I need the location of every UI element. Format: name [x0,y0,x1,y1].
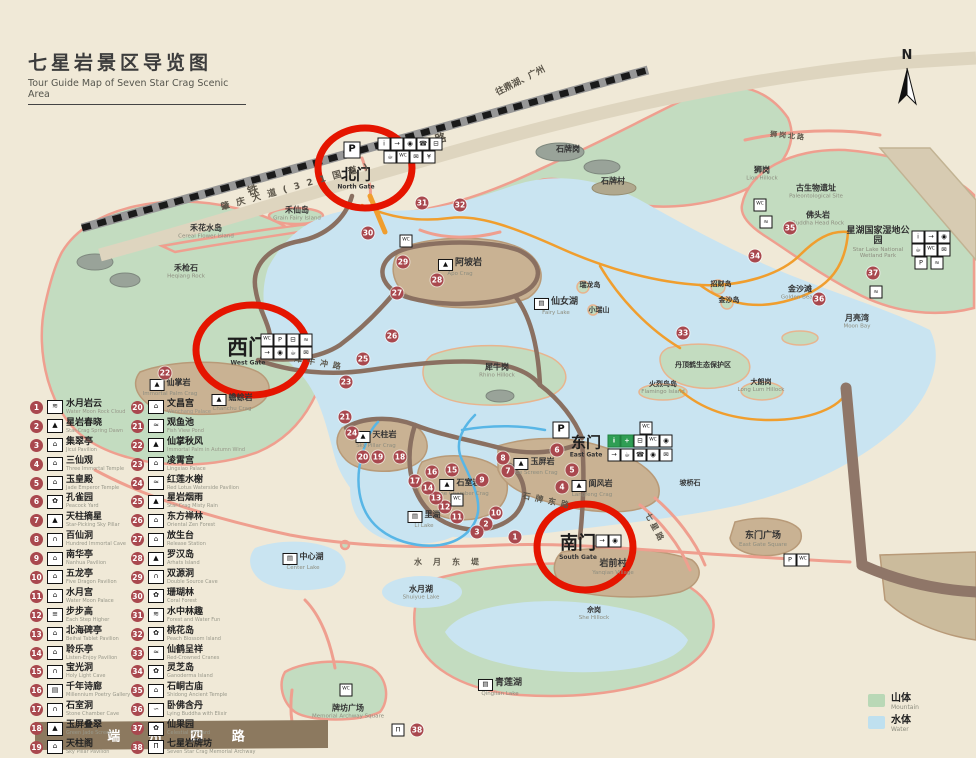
place-name-cn: 狮岗 [754,166,770,175]
mail-icon: ✉ [410,151,423,164]
legend-item-name-en: Jade Emperor Temple [66,486,119,491]
legend-item-name-en: Holy Light Cave [66,674,105,679]
mail-icon: ✉ [300,347,313,360]
boat-icon: ≈ [300,334,313,347]
legend-item-name-cn: 石室洞 [66,702,119,711]
legend-item-name-en: Star-Crag Misty Rain [167,504,218,509]
place-name-en: Shuiyue Lake [403,594,440,600]
place-name-en: Paleontological Site [789,193,843,199]
legend-item-name-cn: 卧佛含丹 [167,702,227,711]
bus-icon: ⊟ [287,334,300,347]
legend-item-name-en: Seven Star Crag Memorial Archway [167,750,255,755]
place-label: 禾仙岛 Grain Fairy Island [273,207,321,222]
sight-marker: 36 [813,293,826,306]
sight-marker: 17 [409,475,422,488]
restroom-icon: WC [640,422,653,435]
parking-icon: P [784,554,797,567]
legend-item: 35 ⌂ 石峒古庙 Shidong Ancient Temple [131,681,255,700]
restroom-icon: WC [400,235,413,248]
legend-item-name-cn: 五龙亭 [66,570,117,579]
legend-item-number: 4 [30,458,43,471]
restroom-icon: WC [261,334,274,347]
place-label: ▤青莲湖 Qinglian Lake [478,679,522,697]
place-label: 大朗岗 Long Lum Hillock [738,379,785,393]
legend-item-name-cn: 南华亭 [66,551,106,560]
legend-item-name-cn: 千年诗廊 [66,683,130,692]
legend-item-icon: ∩ [47,533,63,547]
legend-item-name-cn: 百仙洞 [66,532,126,541]
legend-item-name-cn: 天柱摘星 [66,513,120,522]
place-label: 禾花水岛 Cereal Flower Island [178,225,234,240]
legend-item-name-cn: 宝光洞 [66,664,105,673]
sight-marker: 25 [357,353,370,366]
legend-item-name-en: Stone Chamber Cave [66,712,119,717]
boat-icon: ≈ [760,216,773,229]
place-name-en: Jade Screen Crag [510,470,557,476]
camera-icon: ◉ [274,347,287,360]
restroom-icon: WC [647,435,660,448]
legend-item-number: 38 [131,741,144,754]
legend-item-name-cn: 仙果园 [167,721,210,730]
legend-item-icon: ⌂ [148,457,164,471]
legend-item-number: 10 [30,571,43,584]
sight-marker: 15 [446,464,459,477]
place-name-cn: 阿坡岩 [455,258,482,268]
legend-item-number: 9 [30,552,43,565]
legend-item-name-en: Water Moon Rock Cloud [66,410,125,415]
legend-item-name-cn: 星岩烟雨 [167,494,218,503]
place-name-cn: 仙掌岩 [167,378,191,387]
legend-item: 11 ⌂ 水月宫 Water Moon Palace [30,587,130,606]
legend-item: 24 ≈ 红莲水榭 Red Lotus Waterside Pavilion [131,474,255,493]
legend-item-name-en: Five Dragon Pavilion [66,580,117,585]
legend-item-number: 31 [131,609,144,622]
sight-marker: 3 [471,526,484,539]
sight-marker: 7 [502,465,515,478]
legend-item-name-en: Peacock Yard [66,504,99,509]
phone-icon: ☎ [634,449,647,462]
exit-icon: → [925,231,938,244]
legend-item-name-en: Release Station [167,542,206,547]
legend-item-number: 2 [30,420,43,433]
legend-item-number: 26 [131,514,144,527]
legend-item-name-cn: 天柱阁 [66,740,109,749]
place-label: ▲玉屏岩 Jade Screen Crag [510,458,557,476]
sight-marker: 26 [386,330,399,343]
place-name-en: Long Lum Hillock [738,387,785,393]
legend-item-icon: ✿ [148,627,164,641]
place-name-cn: 招财岛 [711,280,732,288]
legend-item: 36 ∽ 卧佛含丹 Lying Buddha with Elixir [131,700,255,719]
camera-icon: ◉ [609,535,622,548]
legend-item-number: 32 [131,628,144,641]
place-name-cn: 丹顶鹤生态保护区 [675,361,731,369]
legend-item-number: 6 [30,495,43,508]
legend-item-name-en: Ganoderma Island [167,674,213,679]
compass-needle [898,68,916,104]
sight-marker: 14 [422,482,435,495]
east-gate-label: 东门 East Gate [570,436,603,459]
legend-item-name-cn: 集翠亭 [66,438,97,447]
legend-item: 4 ⌂ 三仙观 Three Immortal Temple [30,455,130,474]
place-name-cn: 牌坊广场 [332,704,364,713]
place-label: 牌坊广场 Memorial Archway Square [312,705,384,720]
legend-item-icon: ≡ [47,608,63,622]
restroom-icon: WC [451,494,464,507]
place-name-en: Buddha Head Rock [792,220,844,226]
legend-item-number: 36 [131,703,144,716]
place-label: 狮岗 Lion Hillock [746,167,778,182]
legend-item-name-en: Double Source Cave [167,580,218,585]
place-name-cn: 里湖 [425,510,441,519]
legend-item-number: 27 [131,533,144,546]
legend-item-icon: ⌂ [47,457,63,471]
legend-item-name-en: Listen-Enjoy Pavilion [66,656,117,661]
legend-item-icon: ⌂ [47,740,63,754]
legend-item: 14 ⌂ 聆乐亭 Listen-Enjoy Pavilion [30,644,130,663]
legend-item-name-cn: 罗汉岛 [167,551,200,560]
legend-item-name-cn: 红莲水榭 [167,476,239,485]
place-label: 星湖国家湿地公园 Star Lake National Wetland Park [845,227,911,259]
legend-item-name-en: Wenchang Palace [167,410,211,415]
legend-item-name-cn: 仙掌秋风 [167,438,245,447]
legend-item-name-en: Forest and Water Fun [167,618,220,623]
sight-marker: 28 [431,274,444,287]
sight-marker: 8 [497,452,510,465]
sight-marker: 10 [490,507,503,520]
legend-item-icon: ≋ [47,400,63,414]
legend-item: 28 ▲ 罗汉岛 Arhats Island [131,549,255,568]
place-name-cn: 石牌岗 [556,145,580,154]
legend-item-icon: ▲ [148,495,164,509]
exit-icon: → [596,535,609,548]
place-name-en: Lion Hillock [746,175,778,181]
legend-item-number: 25 [131,495,144,508]
legend-item: 8 ∩ 百仙洞 Hundred Immortal Cave [30,530,130,549]
legend-item: 29 ∩ 双源洞 Double Source Cave [131,568,255,587]
legend-item-number: 29 [131,571,144,584]
place-name-cn: 古生物遗址 [796,184,836,193]
sight-marker: 18 [394,451,407,464]
water-swatch [868,716,885,729]
place-name-en: She Hillock [579,615,609,621]
legend-item-icon: ▲ [148,438,164,452]
exit-icon: → [391,138,404,151]
place-name-cn: 石牌村 [601,177,625,186]
legend-item-name-en: Celestial Orchard [167,731,210,736]
phone-icon: ☎ [417,138,430,151]
legend-item-icon: ✿ [148,589,164,603]
legend-item: 27 ⌂ 放生台 Release Station [131,530,255,549]
place-name-en: Fairy Lake [534,310,578,316]
map-title-cn: 七星岩景区导览图 [28,48,246,75]
legend-item: 31 ≋ 水中林趣 Forest and Water Fun [131,606,255,625]
bus-icon: ⊟ [634,435,647,448]
legend-item: 2 ▲ 星岩春晓 Star-Crag Spring Dawn [30,417,130,436]
boat-icon: ≈ [931,257,944,270]
south-gate-label: 南门 South Gate [559,535,597,561]
place-pictogram-icon: ▲ [439,479,454,491]
place-label: 石牌岗 [556,146,580,155]
place-name-cn: 禾枪石 [174,264,198,273]
legend-item-name-en: Star-Picking Sky Pillar [66,523,120,528]
legend-item: 15 ∩ 宝光洞 Holy Light Cave [30,662,130,681]
place-name-cn: 水月湖 [409,585,433,594]
place-label: ▤仙女湖 Fairy Lake [534,298,578,316]
legend-item-name-en: Peach Blossom Island [167,637,221,642]
place-name-cn: 佘岗 [587,606,601,614]
sight-marker: 33 [677,327,690,340]
place-label: 犀牛岗 Rhino Hillock [479,364,515,379]
archway-icon: Π [392,724,405,737]
place-pictogram-icon: ▤ [283,553,298,565]
place-label: 岩前村 Yanqian Village [592,560,634,576]
legend-item-name-cn: 水月宫 [66,589,114,598]
legend-item-icon: ▲ [148,552,164,566]
place-name-en: Memorial Archway Square [312,713,384,719]
place-name-cn: 大朗岗 [750,378,771,386]
place-name-cn: 玉屏岩 [531,457,555,466]
shop-icon: ¥ [423,151,436,164]
legend-item-icon: ⌂ [47,570,63,584]
legend-item-name-cn: 仙鹤呈祥 [167,646,219,655]
legend-item-name-cn: 北海碑亭 [66,627,119,636]
place-name-cn: 中心湖 [300,552,324,561]
map-title: 七星岩景区导览图 Tour Guide Map of Seven Star Cr… [28,48,246,105]
place-name-cn: 火烈鸟岛 [649,380,677,388]
place-name-cn: 青莲湖 [495,678,522,688]
legend-item-number: 14 [30,647,43,660]
place-name-cn: 岩前村 [599,559,626,569]
legend-item-number: 13 [30,628,43,641]
legend-item: 16 ▤ 千年诗廊 Millennium Poetry Gallery [30,681,130,700]
exit-icon: → [261,347,274,360]
place-label: 水月湖 Shuiyue Lake [403,586,440,601]
legend-item-name-cn: 文昌宫 [167,400,211,409]
legend-item-icon: ▤ [47,684,63,698]
legend-item-icon: ✿ [47,495,63,509]
legend-item-number: 37 [131,722,144,735]
legend-item-number: 18 [30,722,43,735]
legend-item-icon: ✿ [148,665,164,679]
legend-item-number: 24 [131,477,144,490]
place-label: 东门广场 East Gate Square [739,532,787,548]
drink-icon: ☕ [287,347,300,360]
legend-item-icon: Π [148,740,164,754]
sight-marker: 21 [339,411,352,424]
sight-marker: 32 [454,199,467,212]
parking-icon: P [553,422,570,439]
restroom-icon: WC [925,244,938,257]
legend-item: 37 ✿ 仙果园 Celestial Orchard [131,719,255,738]
parking-icon: P [344,142,361,159]
legend-item-name-cn: 放生台 [167,532,206,541]
place-name-en: Grain Fairy Island [273,215,321,221]
legend-item-number: 7 [30,514,43,527]
legend-item: 12 ≡ 步步高 Each Step Higher [30,606,130,625]
legend-item-icon: ⌂ [148,533,164,547]
sight-marker: 24 [346,427,359,440]
sight-marker: 6 [551,444,564,457]
place-name-cn: 金沙岛 [719,296,740,304]
place-label: 石牌村 [601,178,625,187]
road-label: 水月东堤 [414,557,490,568]
exit-icon: → [608,449,621,462]
place-label: 坡桥石 [680,480,701,488]
place-pictogram-icon: ▲ [514,458,529,470]
legend-item: 13 ⌂ 北海碑亭 Beihai Tablet Pavilion [30,625,130,644]
place-label: ▲阆风岩 Langfeng Crag [572,480,613,498]
legend-item-icon: ≋ [148,608,164,622]
legend-item: 34 ✿ 灵芝岛 Ganoderma Island [131,662,255,681]
place-label: ▲阿坡岩 Apo Crag [438,259,482,277]
legend-item-icon: ⌂ [47,476,63,490]
boat-icon: ≈ [870,286,883,299]
legend-item-name-cn: 双源洞 [167,570,218,579]
legend-item-name-cn: 三仙观 [66,457,124,466]
legend-item-icon: ▲ [47,419,63,433]
restroom-icon: WC [797,554,810,567]
place-label: 丹顶鹤生态保护区 [674,362,732,370]
legend-item-name-en: Coral Forest [167,599,197,604]
legend-item-name-en: Lying Buddha with Elixir [167,712,227,717]
legend-item-number: 5 [30,477,43,490]
sight-marker: 31 [416,197,429,210]
sight-marker: 1 [509,531,522,544]
place-name-cn: 天柱岩 [373,430,397,439]
legend-item: 18 ▲ 玉屏叠翠 Green Jade Screen [30,719,130,738]
legend-item-name-cn: 星岩春晓 [66,419,123,428]
legend-item-name-en: Shidong Ancient Temple [167,693,227,698]
sight-marker: 35 [784,222,797,235]
legend-item-name-en: Immortal Palm in Autumn Wind [167,448,245,453]
sight-marker: 23 [340,376,353,389]
place-label: 小瑞山 [589,307,610,315]
legend-item: 6 ✿ 孔雀园 Peacock Yard [30,492,130,511]
sight-marker: 19 [372,451,385,464]
legend-item-number: 17 [30,703,43,716]
legend-item-name-cn: 步步高 [66,608,109,617]
legend-item-number: 22 [131,439,144,452]
mountain-swatch [868,694,885,707]
legend-item-icon: ∩ [47,665,63,679]
place-pictogram-icon: ▤ [534,298,549,310]
legend-item-name-en: Green Jade Screen [66,731,112,736]
sight-marker: 37 [867,267,880,280]
parking-icon: P [274,334,287,347]
legend-item-icon: ⌂ [47,438,63,452]
compass: N [888,48,926,63]
legend-item-icon: ∩ [47,703,63,717]
sight-marker: 11 [451,511,464,524]
legend-item-number: 16 [30,684,43,697]
place-label: 佘岗 She Hillock [579,607,609,621]
legend-item-name-en: Fish View Pond [167,429,204,434]
place-label: 火烈鸟岛 Flamingo Island [641,381,684,395]
place-name-en: Langfeng Crag [572,492,613,498]
place-name-cn: 犀牛岗 [485,363,509,372]
sight-marker: 34 [749,250,762,263]
legend-item: 26 ⌂ 东方禅林 Oriental Zen Forest [131,511,255,530]
legend-item-number: 23 [131,458,144,471]
camera-icon: ◉ [938,231,951,244]
place-name-en: Apo Crag [438,271,482,277]
legend-item: 5 ⌂ 玉皇殿 Jade Emperor Temple [30,474,130,493]
legend-item-name-en: Nanhua Pavilion [66,561,106,566]
map-key: 山体 Mountain 水体 Water [868,694,919,738]
place-pictogram-icon: ▤ [478,679,493,691]
legend-item-icon: ∽ [148,703,164,717]
legend-item-icon: ⌂ [47,646,63,660]
place-name-en: Flamingo Island [641,389,684,395]
legend-item: 23 ⌂ 凌霄宫 Lingxiao Palace [131,455,255,474]
place-name-cn: 仙女湖 [551,297,578,307]
legend-item: 25 ▲ 星岩烟雨 Star-Crag Misty Rain [131,492,255,511]
legend-item-name-cn: 凌霄宫 [167,457,206,466]
legend-item-icon: ⌂ [148,684,164,698]
compass-north-label: N [888,48,926,63]
legend-item-name-cn: 珊瑚林 [167,589,197,598]
legend-item-name-cn: 东方禅林 [167,513,215,522]
legend-item-icon: ≈ [148,476,164,490]
legend-item: 38 Π 七星岩牌坊 Seven Star Crag Memorial Arch… [131,738,255,757]
legend-item-name-cn: 七星岩牌坊 [167,740,255,749]
legend-item-icon: ⌂ [148,514,164,528]
legend-item-name-en: Red Lotus Waterside Pavilion [167,486,239,491]
legend-item-name-en: Water Moon Palace [66,599,114,604]
legend-item-name-cn: 聆乐亭 [66,646,117,655]
place-name-cn: 禾仙岛 [285,206,309,215]
legend-item-icon: ⌂ [148,400,164,414]
tour-guide-map: 七星岩景区导览图 Tour Guide Map of Seven Star Cr… [0,0,976,758]
legend-item-name-en: Three Immortal Temple [66,467,124,472]
legend-item-number: 35 [131,684,144,697]
place-name-cn: 阆风岩 [589,479,613,488]
place-label: ▲仙掌岩 Immortal Palm Crag [143,379,198,397]
map-title-en: Tour Guide Map of Seven Star Crag Scenic… [28,78,246,105]
legend-item-number: 1 [30,401,43,414]
legend-item: 17 ∩ 石室洞 Stone Chamber Cave [30,700,130,719]
place-name-cn: 月亮湾 [845,314,869,323]
legend-item-number: 33 [131,647,144,660]
place-name-cn: 坡桥石 [680,479,701,487]
place-label: ▤里湖 Li Lake [408,511,441,529]
legend-item-name-cn: 孔雀园 [66,494,99,503]
place-label: 金沙岛 [719,297,740,305]
place-pictogram-icon: ▲ [438,259,453,271]
place-label: 招财岛 [711,281,732,289]
place-name-en: East Gate Square [739,542,787,548]
camera-icon: ◉ [660,435,673,448]
legend-item-icon: ▲ [47,722,63,736]
legend-item-number: 28 [131,552,144,565]
drink-icon: ☕ [912,244,925,257]
legend-item-name-cn: 水中林趣 [167,608,220,617]
place-pictogram-icon: ▲ [572,480,587,492]
legend-item-name-en: Jicui Pavilion [66,448,97,453]
sight-marker: 27 [391,287,404,300]
place-name-en: Rhino Hillock [479,372,515,378]
legend-item: 1 ≋ 水月岩云 Water Moon Rock Cloud [30,398,130,417]
place-name-en: Yanqian Village [592,570,634,576]
legend-item-number: 21 [131,420,144,433]
restroom-icon: WC [754,199,767,212]
sight-marker: 16 [426,466,439,479]
place-name-en: Star Lake National Wetland Park [845,247,911,259]
legend-column-1: 1 ≋ 水月岩云 Water Moon Rock Cloud 2 ▲ 星岩春晓 … [30,398,130,757]
legend-item: 32 ✿ 桃花岛 Peach Blossom Island [131,625,255,644]
place-name-en: Heqiang Rock [167,273,205,279]
